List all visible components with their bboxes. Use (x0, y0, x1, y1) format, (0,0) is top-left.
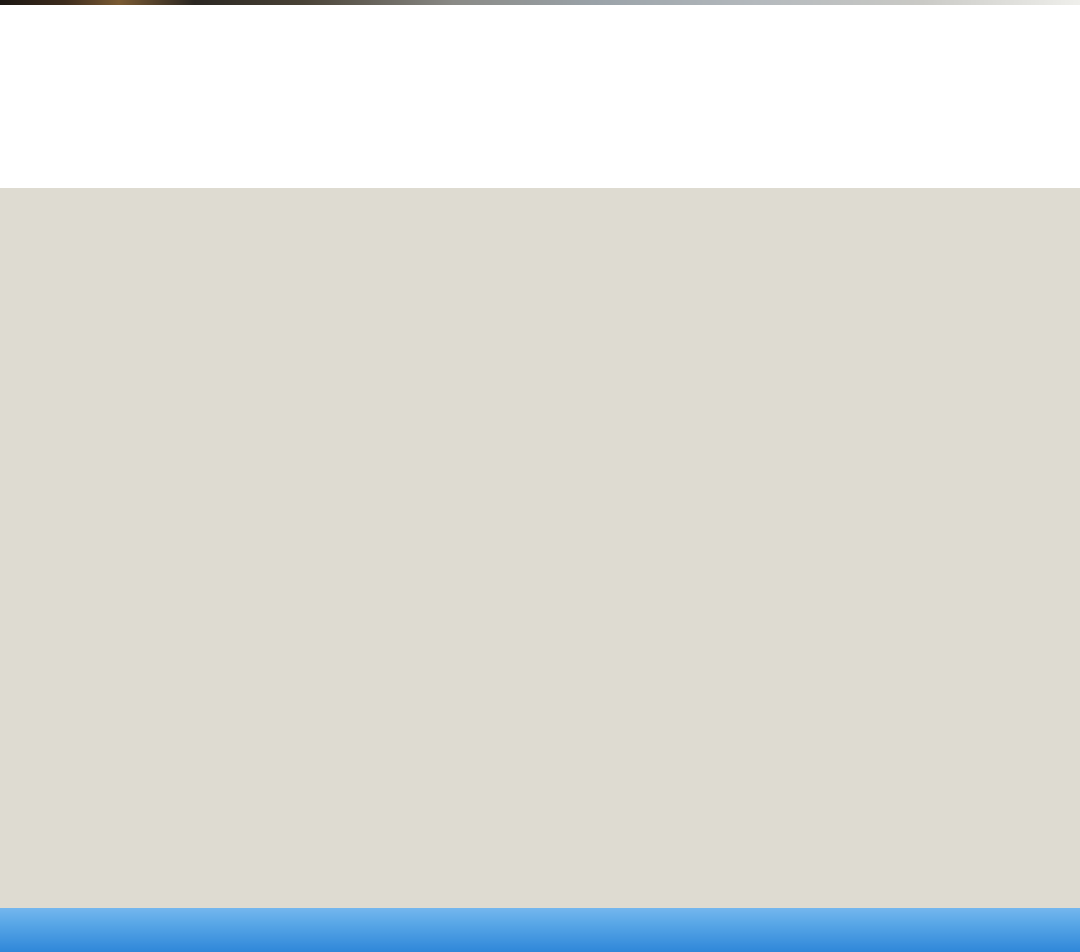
caption-group-screen-casting (356, 908, 713, 952)
caption-multi-screen-interaction (713, 908, 1080, 952)
caption-main-screen-broadcast (0, 908, 356, 952)
section-header (0, 5, 1080, 188)
